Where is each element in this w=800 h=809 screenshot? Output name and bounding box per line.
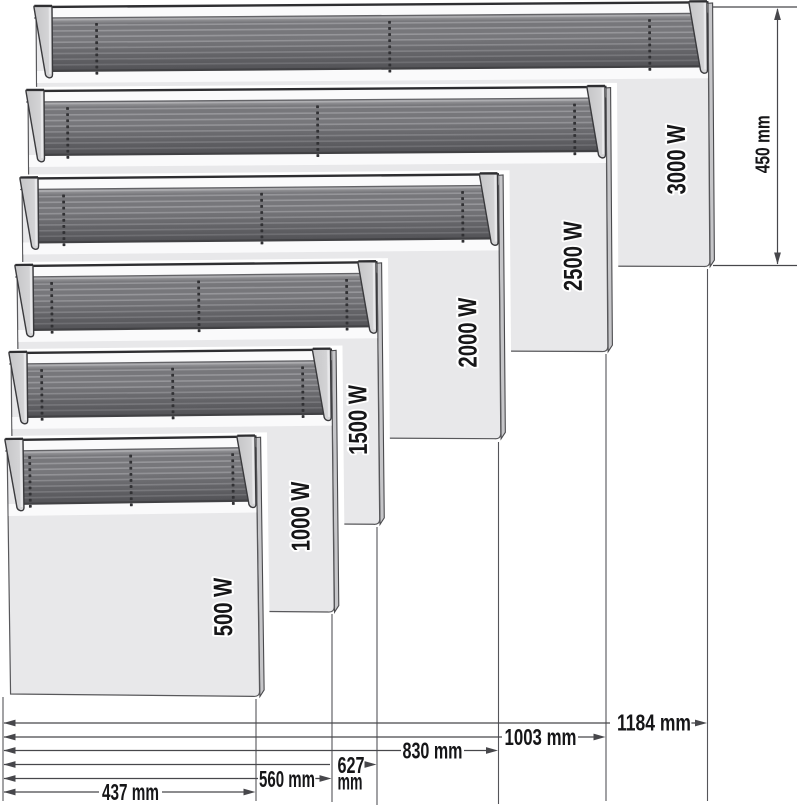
svg-text:mm: mm xyxy=(338,769,363,795)
svg-text:1500 W: 1500 W xyxy=(343,385,373,455)
svg-text:1003 mm: 1003 mm xyxy=(505,724,577,750)
svg-text:2500 W: 2500 W xyxy=(558,221,587,291)
svg-text:500 W: 500 W xyxy=(208,578,238,637)
svg-text:1000 W: 1000 W xyxy=(285,481,315,551)
svg-text:450 mm: 450 mm xyxy=(753,115,775,173)
svg-text:437 mm: 437 mm xyxy=(102,779,159,805)
svg-text:2000 W: 2000 W xyxy=(453,298,483,368)
svg-text:1184 mm: 1184 mm xyxy=(617,710,691,736)
svg-text:830 mm: 830 mm xyxy=(403,738,463,764)
svg-text:560 mm: 560 mm xyxy=(259,766,315,792)
svg-text:3000 W: 3000 W xyxy=(661,125,690,195)
